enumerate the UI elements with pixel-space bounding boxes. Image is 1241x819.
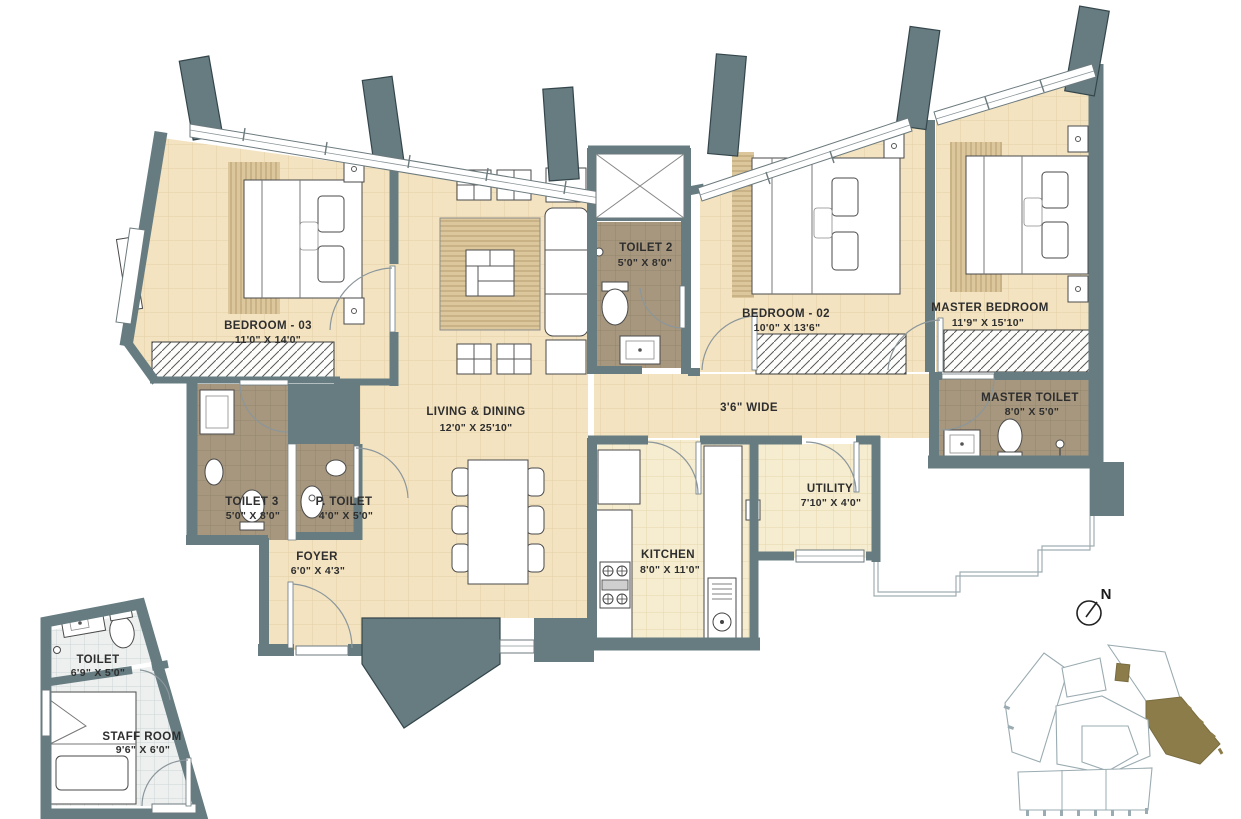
toilet3-door-leaf (240, 380, 288, 385)
keyplan-unit-highlight-small (1115, 663, 1130, 681)
utility-door-leaf (854, 442, 859, 492)
master-cushion (1024, 198, 1042, 226)
bed2-cushion (814, 208, 832, 238)
wc-tank (240, 522, 264, 530)
bed3-cushion (300, 222, 318, 250)
keyplan-bottom-row (1018, 768, 1152, 810)
foyer-name: FOYER (296, 551, 338, 563)
key-plan (1003, 645, 1223, 816)
bed3-wardrobe (152, 342, 334, 382)
wall-block (534, 618, 594, 662)
staff-room-door-leaf (186, 758, 191, 806)
utility-name: UTILITY (807, 483, 853, 495)
north-label: N (1101, 586, 1112, 603)
bed2-wardrobe (756, 334, 906, 374)
bedroom2-name: BEDROOM - 02 (742, 308, 830, 320)
sofa (545, 208, 588, 336)
p-toilet-door-leaf (354, 446, 359, 498)
kitchen-door-leaf (696, 442, 701, 494)
master-bedroom-name: MASTER BEDROOM (931, 302, 1048, 314)
dining-table (468, 460, 528, 584)
bed3-nightstand (344, 298, 364, 324)
partition (288, 444, 296, 540)
toilet2-dim: 5'0" X 8'0" (618, 257, 672, 269)
sink (708, 578, 736, 638)
staff-pillow (56, 756, 128, 790)
master-wardrobe (944, 330, 1090, 372)
dining-set (452, 460, 544, 584)
living-dim: 12'0" X 25'10" (440, 422, 513, 434)
toilet2-door-leaf (680, 286, 685, 328)
master-pillow (1042, 172, 1068, 208)
toilet3-dim: 5'0" X 8'0" (226, 510, 280, 522)
bed3-pillow (318, 196, 344, 232)
passage-label: 3'6" WIDE (720, 402, 778, 414)
fridge (598, 450, 640, 504)
foyer-dim: 6'0" X 4'3" (291, 565, 345, 577)
kitchen-name: KITCHEN (641, 549, 695, 561)
master-toilet-door-leaf (942, 374, 994, 379)
master-bedroom-dim: 11'9" X 15'10" (952, 317, 1024, 329)
living-window (500, 640, 534, 653)
entrance-door-leaf (288, 582, 293, 648)
lift-shaft (596, 154, 684, 218)
bedroom3-dim: 11'0" X 14'0" (235, 334, 301, 346)
wall-stub (1090, 462, 1124, 516)
master-pillow (1042, 222, 1068, 258)
tap (1056, 440, 1064, 448)
toilet3-name: TOILET 3 (225, 496, 278, 508)
bed3-pillow (318, 246, 344, 282)
basin (205, 459, 223, 485)
bed2-pillow (832, 178, 858, 216)
staff-room-name: STAFF ROOM (102, 731, 181, 743)
bedroom2-dim: 10'0" X 13'6" (754, 322, 821, 334)
living-name: LIVING & DINING (426, 406, 525, 418)
wc (998, 419, 1022, 453)
bedroom3-name: BEDROOM - 03 (224, 320, 312, 332)
terrace-outline (874, 468, 1094, 596)
p-toilet-dim: 4'0" X 5'0" (319, 510, 373, 522)
bed2-pillow (832, 232, 858, 270)
foyer-sill (296, 646, 348, 655)
floor-plan-canvas: BEDROOM - 03 11'0" X 14'0" LIVING & DINI… (0, 0, 1241, 819)
duct (288, 384, 360, 444)
bay-wall (362, 618, 500, 728)
utility-dim: 7'10" X 4'0" (801, 497, 862, 509)
kitchen-dim: 8'0" X 11'0" (640, 564, 700, 576)
master-toilet-dim: 8'0" X 5'0" (1005, 406, 1059, 418)
tap (54, 647, 61, 654)
staff-window-left (42, 690, 50, 736)
keyplan-top-center (1062, 658, 1106, 697)
side-table (546, 340, 586, 374)
staff-toilet-dim: 6'9" X 5'0" (71, 667, 125, 679)
north-arrow-icon: N (1077, 586, 1111, 625)
staff-room-dim: 9'6" X 6'0" (116, 744, 170, 756)
p-toilet-name: P. TOILET (316, 496, 373, 508)
wc (602, 289, 628, 325)
master-nightstand (1068, 126, 1088, 152)
staff-toilet-name: TOILET (76, 654, 119, 666)
master-toilet-name: MASTER TOILET (981, 392, 1079, 404)
keyplan-unit-highlight (1146, 697, 1220, 764)
bedroom3-door-leaf (390, 266, 395, 332)
master-nightstand (1068, 276, 1088, 302)
floor-plan-svg: BEDROOM - 03 11'0" X 14'0" LIVING & DINI… (0, 0, 1241, 819)
master-door-leaf (938, 318, 943, 372)
toilet2-name: TOILET 2 (619, 242, 672, 254)
basin (326, 460, 346, 476)
